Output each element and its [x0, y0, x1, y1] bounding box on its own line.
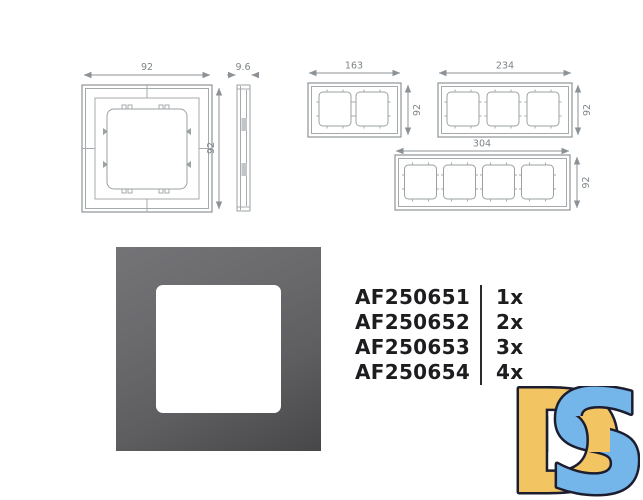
technical-drawings: 92 92 9.6 163 92 [0, 0, 643, 242]
product-qty: 1x [496, 285, 523, 310]
product-codes: AF250651 AF250652 AF250653 AF250654 1x 2… [355, 285, 523, 385]
product-code: AF250651 [355, 285, 480, 310]
product-code: AF250654 [355, 360, 480, 385]
two-gang-width-dimension: 163 [345, 61, 363, 72]
four-gang-height-dimension: 92 [581, 176, 592, 188]
product-photo [116, 247, 321, 451]
product-datasheet: 92 92 9.6 163 92 [0, 0, 643, 500]
product-qty: 3x [496, 335, 523, 360]
product-code: AF250653 [355, 335, 480, 360]
three-gang-width-dimension: 234 [496, 61, 514, 72]
front-height-dimension: 92 [206, 142, 217, 154]
four-gang-drawing: 304 92 [395, 139, 592, 211]
product-qty: 2x [496, 310, 523, 335]
product-qty: 4x [496, 360, 523, 385]
brand-logo: D S D [512, 386, 640, 498]
code-column: AF250651 AF250652 AF250653 AF250654 [355, 285, 480, 385]
quantity-column: 1x 2x 3x 4x [496, 285, 523, 385]
three-gang-drawing: 234 92 [438, 61, 593, 138]
front-width-dimension: 92 [141, 62, 153, 73]
three-gang-height-dimension: 92 [582, 104, 593, 116]
two-gang-drawing: 163 92 [308, 61, 423, 138]
codes-divider [480, 285, 482, 385]
side-view-drawing: 9.6 [227, 62, 259, 211]
two-gang-height-dimension: 92 [412, 104, 423, 116]
product-code: AF250652 [355, 310, 480, 335]
front-view-drawing: 92 92 [82, 62, 219, 212]
four-gang-width-dimension: 304 [473, 139, 491, 150]
side-depth-dimension: 9.6 [235, 62, 250, 73]
photo-frame-window [156, 285, 281, 413]
